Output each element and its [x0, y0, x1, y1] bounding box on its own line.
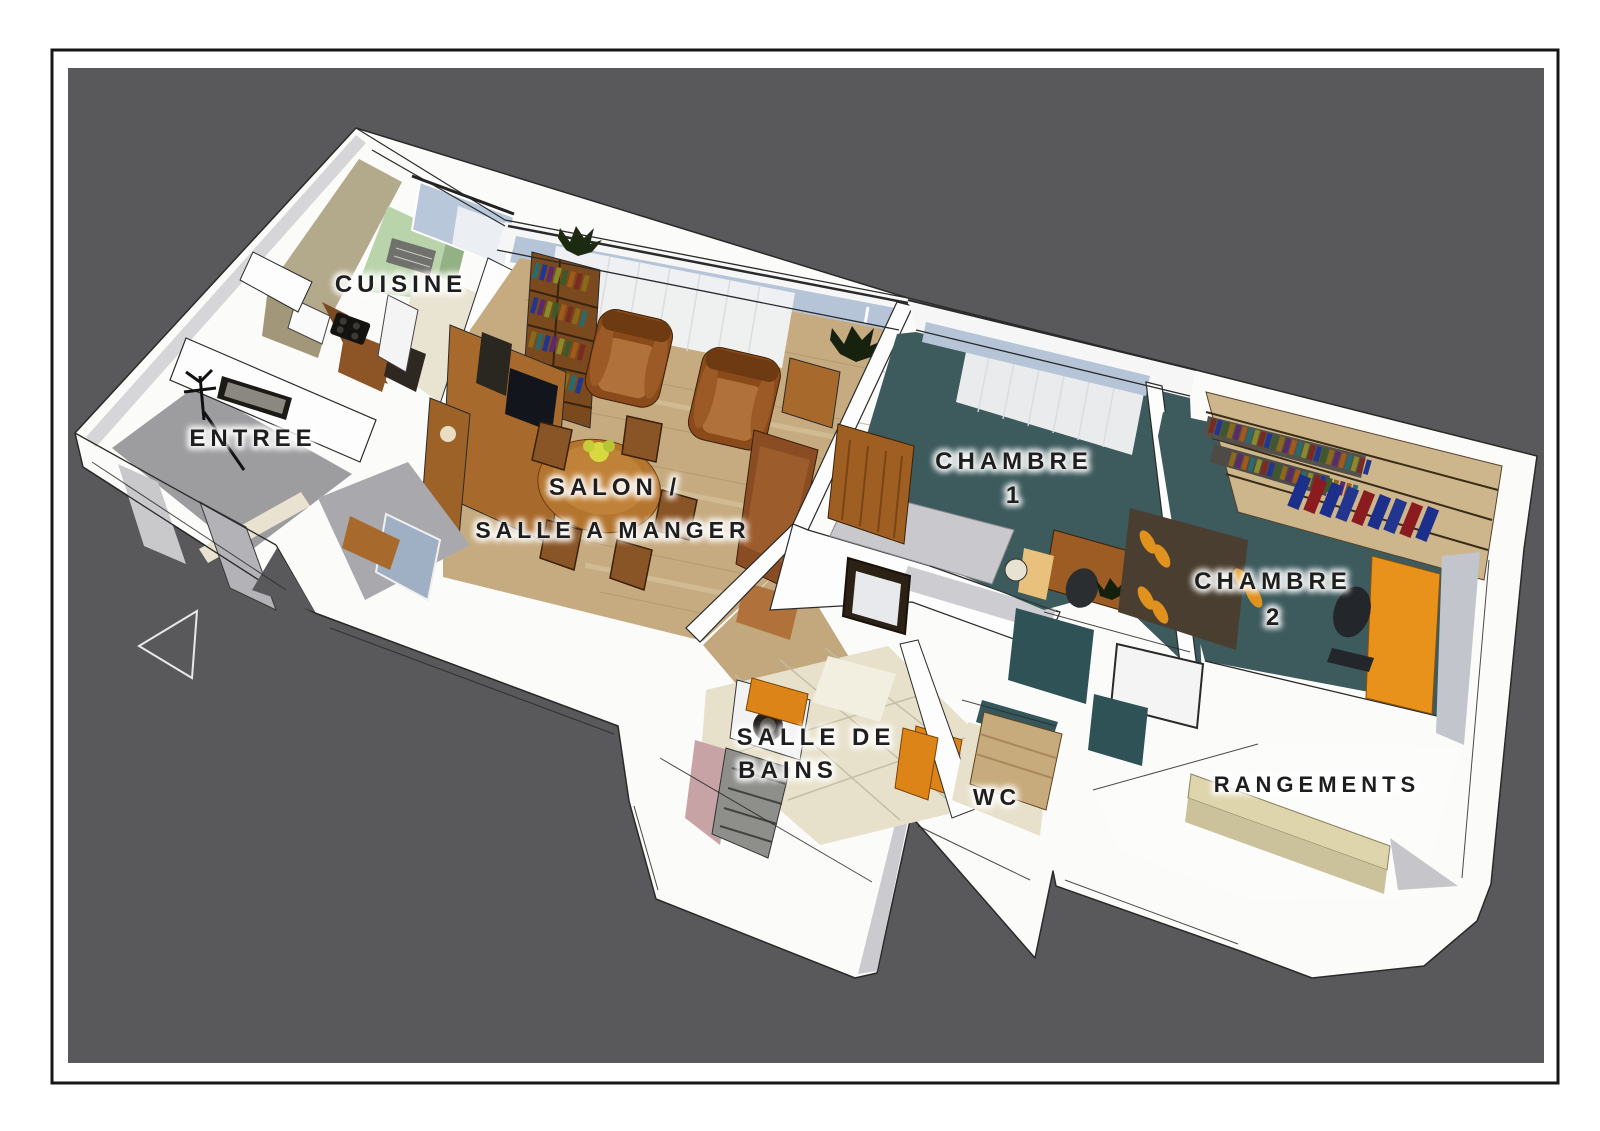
svg-text:CHAMBRE: CHAMBRE: [1194, 568, 1352, 595]
svg-text:SALLE DE: SALLE DE: [737, 724, 896, 751]
svg-text:1: 1: [1006, 482, 1024, 509]
svg-text:SALON /: SALON /: [549, 474, 681, 501]
svg-text:CHAMBRE: CHAMBRE: [935, 448, 1093, 475]
svg-text:ENTREE: ENTREE: [189, 425, 316, 452]
svg-text:RANGEMENTS: RANGEMENTS: [1214, 772, 1420, 797]
svg-text:WC: WC: [973, 784, 1021, 810]
svg-text:SALLE A MANGER: SALLE A MANGER: [475, 517, 750, 543]
svg-text:2: 2: [1266, 604, 1284, 631]
svg-text:BAINS: BAINS: [738, 757, 838, 784]
svg-text:CUISINE: CUISINE: [335, 271, 467, 298]
